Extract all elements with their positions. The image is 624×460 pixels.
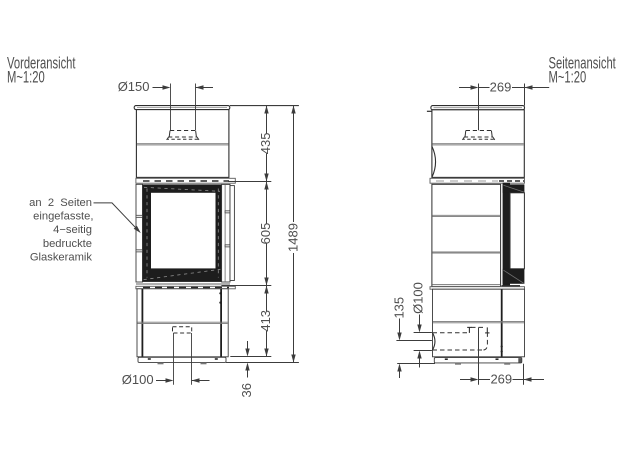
svg-text:bedruckte: bedruckte [43, 238, 92, 250]
svg-text:Ø150: Ø150 [118, 79, 150, 94]
svg-text:an 2 Seiten: an 2 Seiten [29, 197, 92, 209]
svg-text:M~1:20: M~1:20 [7, 67, 45, 86]
svg-text:M~1:20: M~1:20 [549, 67, 587, 86]
svg-text:1489: 1489 [285, 223, 300, 252]
svg-text:605: 605 [258, 223, 273, 245]
svg-text:36: 36 [239, 383, 254, 397]
svg-text:eingefasste,: eingefasste, [33, 211, 93, 223]
svg-text:269: 269 [490, 372, 512, 387]
svg-text:Glaskeramik: Glaskeramik [30, 251, 93, 263]
svg-text:Ø100: Ø100 [122, 372, 154, 387]
svg-text:435: 435 [258, 133, 273, 155]
svg-text:413: 413 [258, 310, 273, 332]
svg-text:4−seitig: 4−seitig [53, 224, 92, 236]
svg-text:135: 135 [391, 297, 406, 319]
svg-text:Ø100: Ø100 [411, 282, 426, 314]
svg-text:269: 269 [490, 79, 512, 94]
